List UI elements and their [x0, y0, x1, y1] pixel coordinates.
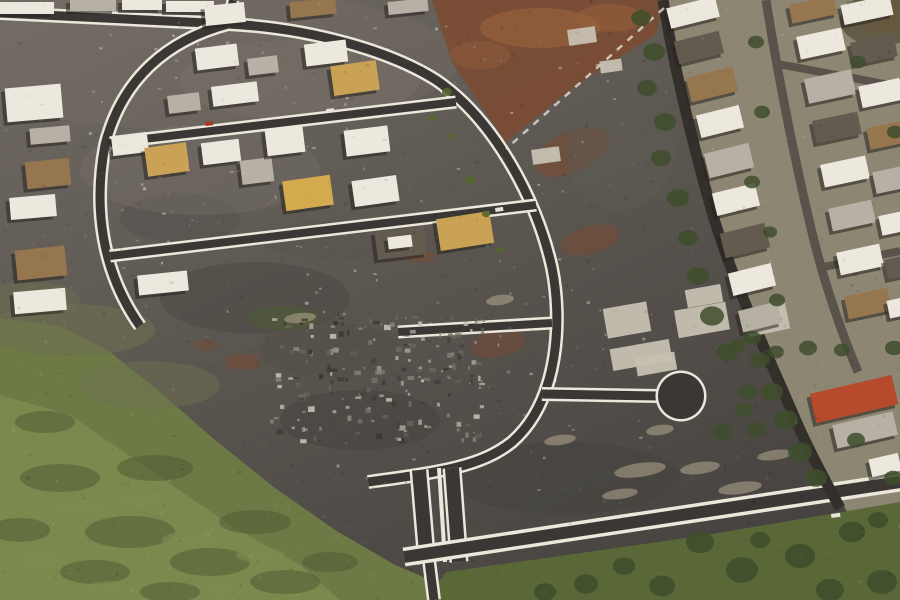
tree-clump	[534, 583, 556, 600]
vehicle	[118, 143, 126, 148]
tree-clump	[850, 56, 866, 69]
house-roof	[0, 2, 54, 14]
house-roof	[330, 60, 380, 96]
house-roof	[344, 125, 391, 156]
scrub-clump-dark	[20, 464, 100, 492]
tree-clump	[643, 43, 665, 61]
tree-clump	[834, 344, 850, 357]
lava-blotch	[565, 90, 675, 210]
house-roof	[144, 142, 190, 177]
olive-transition	[80, 361, 220, 409]
south-stub-road	[429, 560, 434, 600]
tree-clump	[654, 113, 676, 131]
house-roof	[70, 0, 116, 11]
scrub-clump-dark	[60, 560, 130, 584]
vehicle	[326, 108, 334, 113]
tree-clump	[754, 106, 770, 119]
tree-clump	[744, 176, 760, 189]
scrub-clump-bright	[204, 581, 256, 599]
scrub-clump-dark	[250, 570, 320, 594]
scrub-clump-bright	[50, 500, 110, 520]
vehicle	[205, 121, 213, 126]
aerial-photo-canvas	[0, 0, 900, 600]
tree-clump	[750, 532, 770, 548]
house-roof	[122, 0, 162, 10]
tree-clump	[743, 331, 761, 345]
tree-clump	[712, 424, 732, 440]
house-roof	[247, 55, 279, 76]
tree-clump	[868, 512, 888, 528]
tree-clump	[649, 576, 675, 597]
house-roof	[13, 288, 67, 314]
tree-clump	[667, 189, 689, 207]
scrub-clump-dark	[117, 455, 193, 481]
scrub-clump-bright	[236, 547, 284, 563]
house-roof	[9, 194, 57, 220]
culdesac-street	[542, 394, 660, 396]
tree-clump	[613, 557, 635, 575]
tree-clump	[839, 522, 865, 543]
house-roof	[204, 2, 246, 26]
tree-clump	[686, 531, 714, 553]
scrub-clump-dark	[219, 510, 291, 534]
tree-clump	[788, 442, 812, 461]
house-roof	[5, 84, 64, 123]
house-roof	[25, 158, 72, 189]
tree-clump	[763, 226, 777, 237]
aerial-photo	[0, 0, 900, 600]
tree-clump	[785, 544, 815, 568]
tree-clump	[739, 385, 757, 399]
tree-clump	[867, 570, 897, 594]
scrub-clump-dark	[85, 516, 175, 548]
culdesac-bulb	[658, 373, 704, 419]
tree-clump	[847, 433, 865, 447]
bush	[465, 176, 475, 184]
tree-clump	[761, 383, 783, 401]
tree-clump	[747, 422, 767, 438]
tree-clump	[678, 230, 698, 246]
bush	[482, 211, 490, 217]
red-patch	[193, 339, 217, 351]
bush	[496, 247, 504, 253]
tree-clump	[769, 294, 785, 307]
scrub-clump-bright	[82, 581, 138, 599]
scrub-clump-bright	[114, 491, 166, 509]
bush	[442, 88, 452, 96]
tree-clump	[687, 267, 709, 285]
scrub-clump-bright	[162, 531, 218, 549]
tree-clump	[726, 557, 758, 583]
house-roof	[15, 245, 68, 280]
bush	[448, 133, 456, 139]
tree-clump	[799, 341, 817, 355]
scrub-clump-bright	[14, 550, 66, 570]
tree-clump	[637, 80, 657, 96]
tree-clump	[735, 403, 753, 417]
bush	[429, 115, 437, 121]
scrub-clump-dark	[15, 411, 75, 433]
tree-clump	[651, 150, 671, 166]
tree-clump	[700, 306, 724, 325]
tree-clump	[574, 574, 598, 593]
house-roof	[240, 157, 275, 185]
house-roof	[264, 125, 305, 156]
house-roof	[201, 139, 241, 165]
tree-clump	[631, 10, 651, 26]
tree-clump	[805, 469, 827, 487]
tree-clump	[774, 410, 798, 429]
tree-clump	[729, 340, 745, 353]
